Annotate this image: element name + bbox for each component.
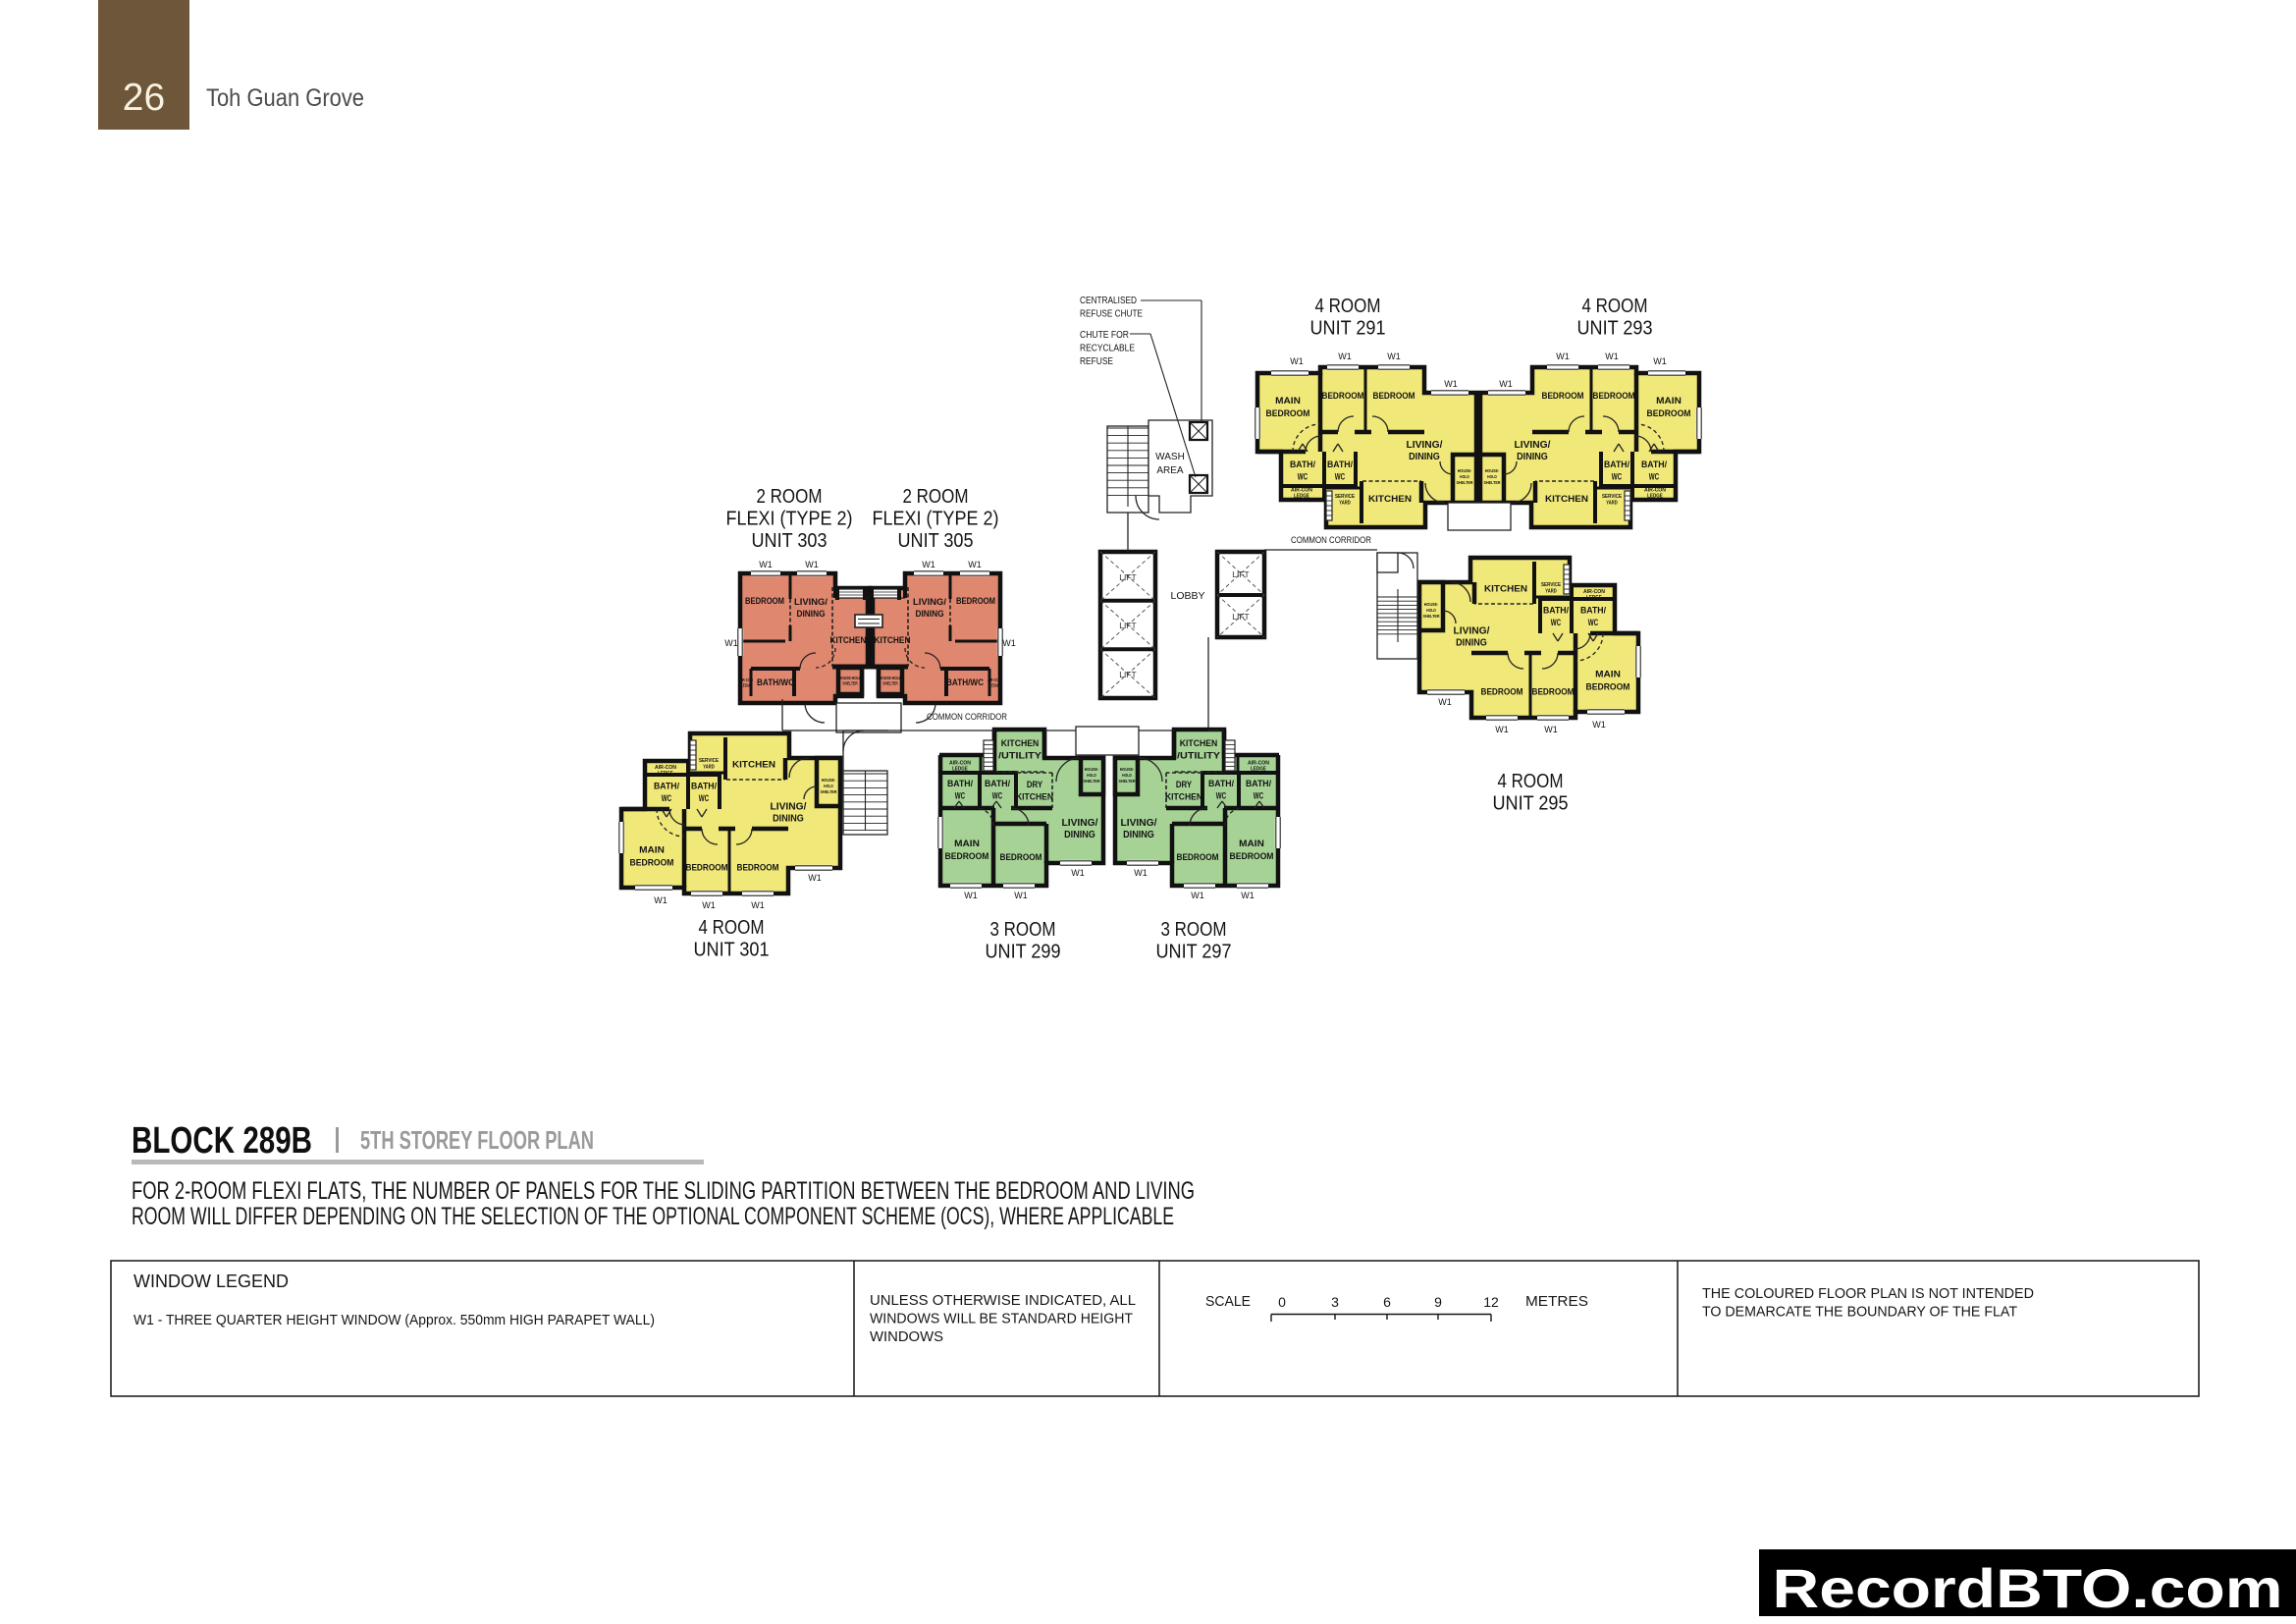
svg-text:BEDROOM: BEDROOM	[745, 596, 784, 606]
svg-text:BEDROOM: BEDROOM	[1230, 851, 1274, 862]
svg-text:UNLESS OTHERWISE INDICATED, AL: UNLESS OTHERWISE INDICATED, ALL	[870, 1292, 1136, 1309]
svg-text:TO DEMARCATE THE BOUNDARY OF T: TO DEMARCATE THE BOUNDARY OF THE FLAT	[1702, 1304, 2017, 1321]
svg-text:METRES: METRES	[1525, 1293, 1588, 1310]
svg-text:SERVICE: SERVICE	[699, 758, 719, 764]
svg-text:KITCHEN: KITCHEN	[1180, 738, 1218, 748]
svg-text:WC: WC	[1298, 472, 1308, 482]
svg-text:HOUSE-: HOUSE-	[1458, 468, 1472, 474]
svg-text:WC: WC	[699, 793, 710, 803]
svg-text:FLEXI (TYPE 2): FLEXI (TYPE 2)	[873, 509, 999, 530]
svg-text:BEDROOM: BEDROOM	[737, 862, 779, 873]
svg-text:LIVING/: LIVING/	[1121, 818, 1157, 829]
svg-text:WC: WC	[1216, 791, 1227, 801]
svg-text:LEDGE: LEDGE	[1251, 767, 1266, 773]
svg-text:YARD: YARD	[1545, 588, 1557, 594]
svg-text:BEDROOM: BEDROOM	[1647, 408, 1691, 419]
svg-text:YARD: YARD	[1339, 501, 1351, 507]
svg-text:BEDROOM: BEDROOM	[686, 862, 728, 873]
svg-text:HOLD: HOLD	[824, 784, 833, 789]
svg-text:3 ROOM: 3 ROOM	[990, 919, 1056, 941]
svg-text:BATH/: BATH/	[1641, 460, 1667, 469]
svg-text:HOUSE-HOLD: HOUSE-HOLD	[880, 676, 901, 680]
svg-text:/UTILITY: /UTILITY	[998, 751, 1041, 761]
svg-text:SHELTER: SHELTER	[882, 681, 898, 686]
svg-text:WC: WC	[992, 791, 1003, 801]
svg-text:W1: W1	[1071, 868, 1085, 878]
svg-text:W1: W1	[922, 560, 935, 569]
svg-text:BATH/: BATH/	[1290, 460, 1315, 469]
svg-text:RECYCLABLE: RECYCLABLE	[1080, 344, 1135, 354]
svg-text:MAIN: MAIN	[954, 839, 980, 849]
svg-text:LIFT: LIFT	[1232, 569, 1249, 579]
svg-text:DRY: DRY	[1027, 780, 1042, 789]
svg-text:LIVING/: LIVING/	[1454, 626, 1490, 637]
svg-text:DRY: DRY	[1176, 780, 1192, 789]
svg-text:KITCHEN: KITCHEN	[1001, 738, 1040, 748]
svg-text:LIVING/: LIVING/	[1515, 440, 1551, 451]
svg-text:LIVING/: LIVING/	[771, 802, 807, 813]
svg-text:SCALE: SCALE	[1205, 1293, 1251, 1310]
svg-text:FOR 2-ROOM FLEXI FLATS, THE NU: FOR 2-ROOM FLEXI FLATS, THE NUMBER OF PA…	[132, 1177, 1195, 1205]
svg-text:KITCHEN: KITCHEN	[1368, 494, 1412, 505]
svg-text:KITCHEN: KITCHEN	[875, 635, 911, 645]
svg-text:DINING: DINING	[915, 609, 943, 619]
svg-text:LIFT: LIFT	[1119, 670, 1136, 679]
svg-text:5TH STOREY FLOOR PLAN: 5TH STOREY FLOOR PLAN	[360, 1125, 594, 1155]
svg-text:W1: W1	[1544, 725, 1558, 734]
svg-text:BATH/: BATH/	[691, 782, 717, 791]
svg-text:26: 26	[123, 77, 165, 119]
svg-text:W1: W1	[702, 900, 716, 910]
svg-text:LEDGE: LEDGE	[658, 771, 673, 777]
svg-text:MAIN: MAIN	[1275, 396, 1301, 406]
svg-text:BATH/: BATH/	[654, 782, 679, 791]
svg-text:LIVING/: LIVING/	[913, 597, 947, 607]
svg-text:UNIT 301: UNIT 301	[694, 940, 770, 961]
svg-text:W1: W1	[1002, 638, 1016, 648]
svg-text:DINING: DINING	[773, 814, 804, 825]
svg-text:2 ROOM: 2 ROOM	[757, 486, 823, 508]
svg-text:YARD: YARD	[1606, 501, 1618, 507]
svg-text:UNIT 297: UNIT 297	[1156, 942, 1232, 963]
svg-text:9: 9	[1434, 1294, 1442, 1310]
svg-text:W1: W1	[1495, 725, 1509, 734]
svg-text:WINDOWS: WINDOWS	[870, 1328, 943, 1345]
svg-text:W1: W1	[1290, 356, 1304, 366]
svg-text:W1: W1	[968, 560, 982, 569]
svg-text:W1: W1	[1499, 379, 1513, 389]
svg-text:MAIN: MAIN	[639, 844, 665, 855]
svg-text:LEDGE: LEDGE	[989, 683, 999, 688]
svg-text:WINDOW LEGEND: WINDOW LEGEND	[133, 1272, 289, 1291]
svg-text:REFUSE: REFUSE	[1080, 356, 1113, 367]
svg-text:UNIT 291: UNIT 291	[1310, 318, 1386, 340]
svg-text:WC: WC	[1335, 472, 1346, 482]
svg-text:WC: WC	[662, 793, 672, 803]
svg-text:MAIN: MAIN	[1656, 396, 1682, 406]
svg-text:4 ROOM: 4 ROOM	[1315, 296, 1381, 317]
svg-text:KITCHEN: KITCHEN	[1545, 494, 1588, 505]
svg-text:UNIT 293: UNIT 293	[1577, 318, 1653, 340]
svg-text:THE COLOURED FLOOR PLAN IS NOT: THE COLOURED FLOOR PLAN IS NOT INTENDED	[1702, 1285, 2034, 1302]
svg-text:WC: WC	[1254, 791, 1264, 801]
svg-text:DINING: DINING	[1064, 830, 1095, 840]
svg-text:BATH/: BATH/	[1580, 606, 1606, 616]
svg-text:BEDROOM: BEDROOM	[1266, 408, 1310, 419]
svg-text:LIFT: LIFT	[1119, 621, 1136, 630]
svg-text:MAIN: MAIN	[1595, 669, 1621, 679]
svg-text:SHELTER: SHELTER	[821, 789, 837, 795]
svg-text:4 ROOM: 4 ROOM	[699, 917, 765, 939]
svg-text:BEDROOM: BEDROOM	[630, 857, 674, 868]
svg-text:W1: W1	[759, 560, 773, 569]
svg-text:HOLD: HOLD	[1122, 773, 1132, 779]
svg-text:SHELTER: SHELTER	[1484, 480, 1501, 486]
svg-text:W1: W1	[1653, 356, 1667, 366]
svg-text:6: 6	[1383, 1294, 1391, 1310]
svg-text:/UTILITY: /UTILITY	[1177, 751, 1220, 761]
svg-text:WC: WC	[1612, 472, 1623, 482]
svg-text:UNIT 303: UNIT 303	[752, 530, 828, 552]
svg-text:BEDROOM: BEDROOM	[1593, 391, 1635, 402]
svg-text:BEDROOM: BEDROOM	[1177, 852, 1219, 863]
svg-text:KITCHEN: KITCHEN	[1165, 792, 1202, 802]
svg-text:BATH/: BATH/	[1543, 606, 1569, 616]
svg-text:DINING: DINING	[1123, 830, 1154, 840]
svg-text:W1: W1	[654, 895, 667, 905]
svg-text:FLEXI (TYPE 2): FLEXI (TYPE 2)	[726, 509, 853, 530]
svg-text:REFUSE CHUTE: REFUSE CHUTE	[1080, 309, 1143, 320]
svg-text:3 ROOM: 3 ROOM	[1161, 919, 1227, 941]
svg-text:DINING: DINING	[1456, 638, 1487, 649]
svg-text:HOUSE-: HOUSE-	[1120, 767, 1135, 773]
svg-text:LEDGE: LEDGE	[1294, 494, 1309, 500]
svg-text:HOLD: HOLD	[1087, 773, 1096, 779]
svg-text:W1: W1	[1241, 891, 1255, 900]
svg-text:YARD: YARD	[703, 764, 715, 770]
svg-text:WINDOWS WILL BE STANDARD HEIGH: WINDOWS WILL BE STANDARD HEIGHT	[870, 1311, 1133, 1327]
svg-text:DINING: DINING	[796, 609, 825, 619]
svg-text:UNIT 299: UNIT 299	[986, 942, 1061, 963]
svg-text:DINING: DINING	[1409, 452, 1440, 462]
svg-text:W1: W1	[1438, 697, 1452, 707]
svg-text:3: 3	[1331, 1294, 1339, 1310]
svg-text:RecordBTO.com: RecordBTO.com	[1773, 1557, 2283, 1619]
svg-text:W1: W1	[751, 900, 765, 910]
svg-text:BEDROOM: BEDROOM	[1542, 391, 1584, 402]
svg-text:BATH/WC: BATH/WC	[946, 677, 984, 687]
svg-text:WC: WC	[1551, 618, 1562, 627]
svg-text:HOUSE-: HOUSE-	[822, 778, 836, 784]
svg-text:AREA: AREA	[1156, 465, 1184, 476]
svg-text:LEDGE: LEDGE	[741, 683, 751, 688]
svg-text:W1: W1	[1338, 352, 1352, 361]
svg-text:W1: W1	[1444, 379, 1458, 389]
svg-text:SHELTER: SHELTER	[1119, 779, 1136, 785]
svg-text:LIVING/: LIVING/	[794, 597, 828, 607]
svg-text:4 ROOM: 4 ROOM	[1582, 296, 1648, 317]
svg-text:W1: W1	[1191, 891, 1204, 900]
svg-text:KITCHEN: KITCHEN	[1484, 583, 1527, 594]
svg-text:HOUSE-: HOUSE-	[1085, 767, 1099, 773]
svg-text:CHUTE FOR: CHUTE FOR	[1080, 330, 1129, 341]
svg-text:KITCHEN: KITCHEN	[732, 759, 775, 770]
svg-text:AIR-CON: AIR-CON	[739, 677, 753, 682]
svg-text:UNIT 295: UNIT 295	[1493, 793, 1569, 815]
svg-text:HOUSE-: HOUSE-	[1485, 468, 1500, 474]
svg-text:HOLD: HOLD	[1426, 608, 1436, 614]
svg-text:LOBBY: LOBBY	[1170, 590, 1204, 602]
svg-text:WC: WC	[1649, 472, 1660, 482]
svg-text:W1 - THREE QUARTER HEIGHT WIND: W1 - THREE QUARTER HEIGHT WINDOW (Approx…	[133, 1312, 655, 1328]
svg-text:BEDROOM: BEDROOM	[956, 596, 995, 606]
svg-text:SERVICE: SERVICE	[1335, 494, 1355, 500]
svg-text:W1: W1	[1014, 891, 1028, 900]
svg-text:ROOM WILL DIFFER DEPENDING ON: ROOM WILL DIFFER DEPENDING ON THE SELECT…	[132, 1203, 1174, 1230]
svg-text:SHELTER: SHELTER	[1457, 480, 1473, 486]
svg-text:LEDGE: LEDGE	[1586, 595, 1602, 601]
svg-text:BEDROOM: BEDROOM	[1322, 391, 1364, 402]
svg-text:W1: W1	[1134, 868, 1148, 878]
svg-text:SHELTER: SHELTER	[842, 681, 858, 686]
svg-text:KITCHEN: KITCHEN	[830, 635, 867, 645]
svg-text:SHELTER: SHELTER	[1423, 614, 1440, 620]
svg-text:CENTRALISED: CENTRALISED	[1080, 296, 1137, 306]
svg-text:WASH: WASH	[1155, 452, 1185, 462]
svg-text:BEDROOM: BEDROOM	[945, 851, 989, 862]
svg-text:BLOCK 289B: BLOCK 289B	[132, 1120, 312, 1162]
svg-text:HOUSE-HOLD: HOUSE-HOLD	[839, 676, 861, 680]
svg-text:SERVICE: SERVICE	[1602, 494, 1622, 500]
svg-text:BATH/WC: BATH/WC	[757, 677, 794, 687]
svg-text:MAIN: MAIN	[1239, 839, 1264, 849]
svg-text:BATH/: BATH/	[1327, 460, 1353, 469]
svg-text:LIVING/: LIVING/	[1407, 440, 1443, 451]
svg-text:BATH/: BATH/	[985, 779, 1010, 788]
svg-text:BEDROOM: BEDROOM	[1586, 681, 1630, 692]
svg-text:BEDROOM: BEDROOM	[1000, 852, 1042, 863]
svg-text:12: 12	[1483, 1294, 1499, 1310]
svg-text:UNIT 305: UNIT 305	[898, 530, 974, 552]
svg-text:KITCHEN: KITCHEN	[1016, 792, 1053, 802]
svg-text:W1: W1	[1387, 352, 1401, 361]
svg-text:W1: W1	[724, 638, 738, 648]
svg-text:W1: W1	[1556, 352, 1570, 361]
svg-text:W1: W1	[1592, 720, 1606, 730]
svg-text:LIFT: LIFT	[1232, 612, 1249, 622]
svg-text:LIVING/: LIVING/	[1062, 818, 1098, 829]
svg-text:SERVICE: SERVICE	[1541, 582, 1561, 588]
svg-text:0: 0	[1278, 1294, 1286, 1310]
svg-text:2 ROOM: 2 ROOM	[903, 486, 969, 508]
svg-text:HOLD: HOLD	[1487, 474, 1497, 480]
svg-text:BEDROOM: BEDROOM	[1481, 686, 1523, 697]
svg-text:W1: W1	[808, 873, 822, 883]
svg-text:BEDROOM: BEDROOM	[1532, 686, 1575, 697]
svg-text:BATH/: BATH/	[1246, 779, 1271, 788]
svg-text:BEDROOM: BEDROOM	[1373, 391, 1415, 402]
svg-text:Toh Guan Grove: Toh Guan Grove	[206, 84, 364, 112]
svg-text:COMMON CORRIDOR: COMMON CORRIDOR	[1291, 535, 1371, 546]
svg-text:AIR-CON: AIR-CON	[988, 677, 1001, 682]
svg-text:BATH/: BATH/	[1604, 460, 1629, 469]
svg-text:W1: W1	[1605, 352, 1619, 361]
svg-text:W1: W1	[805, 560, 819, 569]
svg-text:4 ROOM: 4 ROOM	[1498, 771, 1564, 792]
svg-text:SHELTER: SHELTER	[1084, 779, 1100, 785]
svg-text:LEDGE: LEDGE	[952, 767, 968, 773]
svg-text:WC: WC	[1588, 618, 1599, 627]
svg-text:DINING: DINING	[1517, 452, 1548, 462]
svg-text:HOLD: HOLD	[1460, 474, 1469, 480]
svg-text:LIFT: LIFT	[1119, 572, 1136, 582]
svg-text:LEDGE: LEDGE	[1647, 494, 1663, 500]
svg-text:BATH/: BATH/	[947, 779, 973, 788]
svg-text:W1: W1	[964, 891, 978, 900]
svg-text:WC: WC	[955, 791, 966, 801]
svg-text:COMMON CORRIDOR: COMMON CORRIDOR	[927, 712, 1007, 723]
svg-text:HOUSE-: HOUSE-	[1424, 602, 1439, 608]
svg-text:BATH/: BATH/	[1208, 779, 1234, 788]
